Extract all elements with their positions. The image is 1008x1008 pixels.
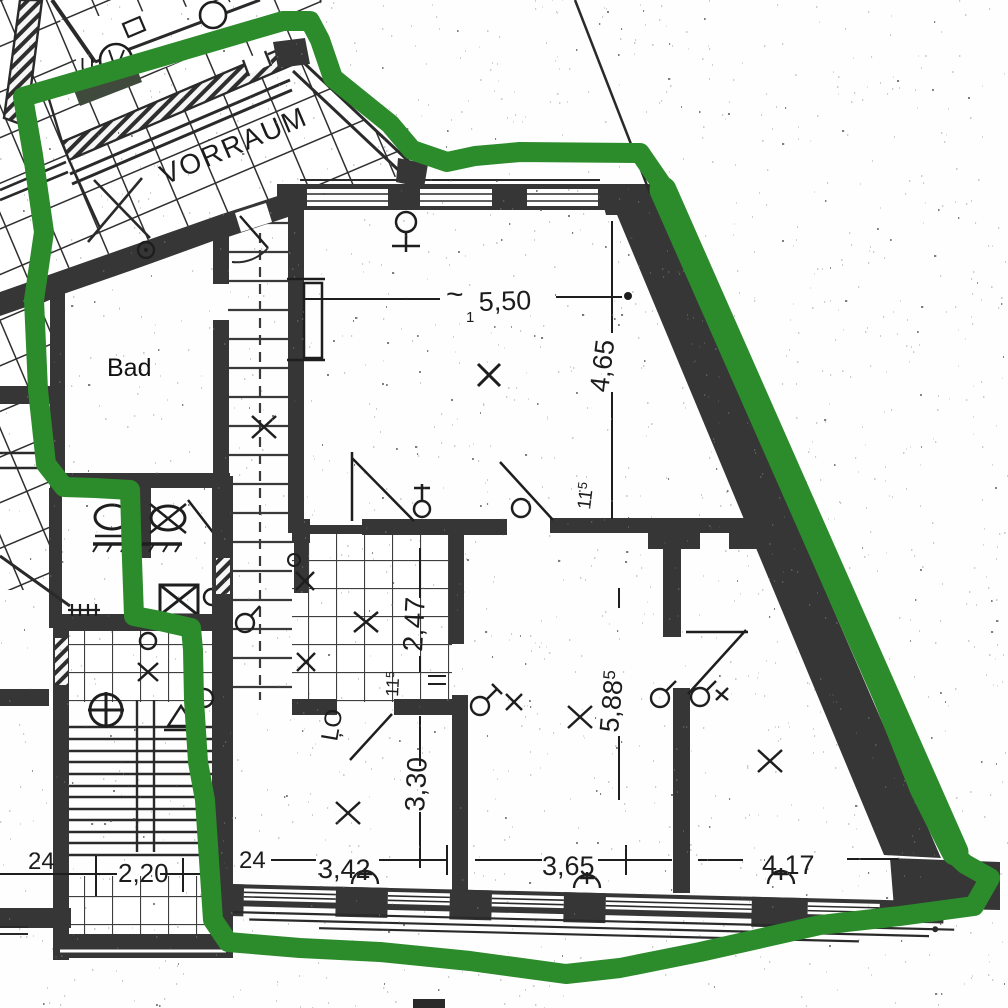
svg-text:2,20: 2,20 bbox=[118, 858, 169, 888]
svg-text:24: 24 bbox=[28, 848, 55, 875]
svg-text:4,65: 4,65 bbox=[584, 338, 620, 394]
svg-text:~: ~ bbox=[446, 278, 464, 311]
svg-text:1: 1 bbox=[466, 309, 474, 326]
svg-text:3,42: 3,42 bbox=[318, 854, 371, 884]
svg-text:2,47: 2,47 bbox=[397, 596, 431, 652]
svg-text:Bad: Bad bbox=[107, 354, 151, 382]
svg-text:3,30: 3,30 bbox=[399, 756, 433, 812]
svg-text:ĻO: ĻO bbox=[316, 707, 348, 743]
svg-text:5,50: 5,50 bbox=[478, 285, 532, 317]
svg-text:24: 24 bbox=[239, 847, 266, 874]
